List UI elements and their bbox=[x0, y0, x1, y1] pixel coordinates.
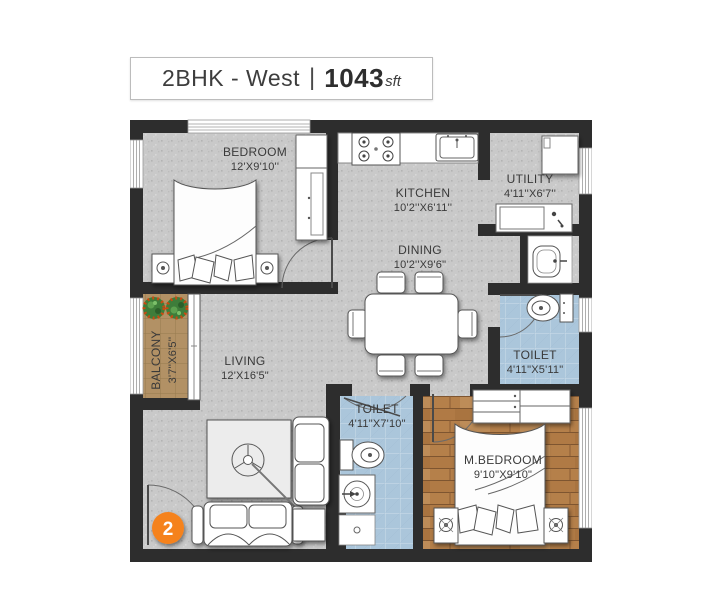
sofa-side bbox=[293, 417, 329, 505]
wall-south-seg1 bbox=[326, 384, 352, 396]
dining-table bbox=[365, 294, 458, 354]
plan-area-unit: sft bbox=[385, 67, 401, 90]
wall-toilet-right-top bbox=[488, 283, 580, 295]
sofa-main bbox=[192, 502, 303, 546]
master-bedroom-dims: 9'10"X9'10" bbox=[474, 469, 532, 481]
stove bbox=[352, 133, 400, 165]
wc bbox=[340, 440, 384, 470]
window-balcony-left bbox=[130, 298, 143, 394]
nightstand-left bbox=[152, 254, 174, 283]
wardrobe-master bbox=[473, 390, 570, 423]
nightstand-left bbox=[434, 508, 458, 543]
wall-kitchen-utility bbox=[478, 133, 490, 180]
floorplan-drawing: BEDROOM 12'X9'10'' KITCHEN 10'2''X6'11''… bbox=[130, 108, 592, 562]
wall-bottom bbox=[130, 549, 592, 562]
living-label: LIVING bbox=[224, 354, 265, 368]
window-utility-right bbox=[579, 148, 592, 194]
entrance-unit-number: 2 bbox=[163, 519, 174, 540]
dining-label: DINING bbox=[398, 243, 442, 257]
plan-title-box: 2BHK - West | 1043 sft bbox=[130, 57, 433, 100]
kitchen-label: KITCHEN bbox=[396, 186, 451, 200]
window-bedroom-left bbox=[130, 140, 143, 188]
shower-tray bbox=[339, 515, 375, 545]
window-bedroom-top bbox=[188, 120, 310, 133]
bedroom-dims: 12'X9'10'' bbox=[231, 161, 279, 173]
master-bedroom-label: M.BEDROOM bbox=[464, 453, 542, 467]
dining-dims: 10'2''X9'6" bbox=[394, 259, 446, 271]
kitchen-fixtures bbox=[338, 133, 478, 165]
toilet-bottom-label: TOILET bbox=[355, 402, 399, 416]
balcony-label: BALCONY bbox=[149, 330, 163, 389]
plant bbox=[166, 297, 188, 319]
plan-area-value: 1043 bbox=[324, 63, 384, 94]
wall-toilet-master bbox=[413, 396, 423, 549]
toilet-right-label: TOILET bbox=[513, 348, 557, 362]
toilet-right-dims: 4'11"X5'11" bbox=[507, 364, 564, 376]
living-dims: 12'X16'5" bbox=[221, 370, 269, 382]
window-master-right bbox=[579, 408, 592, 528]
balcony-dims: 3'7''X6'5'' bbox=[167, 337, 179, 384]
title-separator: | bbox=[309, 64, 315, 92]
washbasin-niche bbox=[528, 236, 572, 283]
wall-bedroom-kitchen bbox=[326, 133, 338, 240]
entrance-marker: 2 bbox=[152, 512, 184, 544]
toilet-right-fixtures bbox=[527, 294, 573, 322]
floorplan-page: 2BHK - West | 1043 sft bbox=[0, 0, 706, 612]
utility-label: UTILITY bbox=[507, 172, 554, 186]
washing-machine bbox=[542, 136, 578, 174]
kitchen-sink bbox=[436, 134, 478, 161]
window-toilet-right bbox=[579, 298, 592, 332]
toilet-bottom-dims: 4'11"X7'10" bbox=[348, 418, 405, 430]
kitchen-dims: 10'2''X6'11'' bbox=[394, 202, 452, 214]
utility-dims: 4'11''X6'7'' bbox=[504, 188, 556, 200]
nightstand-right bbox=[256, 254, 278, 283]
plan-type-label: 2BHK - West bbox=[162, 65, 300, 92]
nightstand-right bbox=[544, 508, 568, 543]
wall-niche-divider bbox=[520, 236, 528, 283]
utility-sink bbox=[496, 204, 572, 232]
plant bbox=[143, 297, 165, 319]
side-table bbox=[293, 509, 325, 541]
wall-south-seg2 bbox=[410, 384, 430, 396]
washbasin bbox=[339, 475, 375, 513]
bedroom-label: BEDROOM bbox=[223, 145, 287, 159]
wardrobe-bedroom bbox=[296, 135, 327, 240]
door-balcony-slider bbox=[188, 294, 200, 400]
living-furniture bbox=[192, 417, 329, 546]
